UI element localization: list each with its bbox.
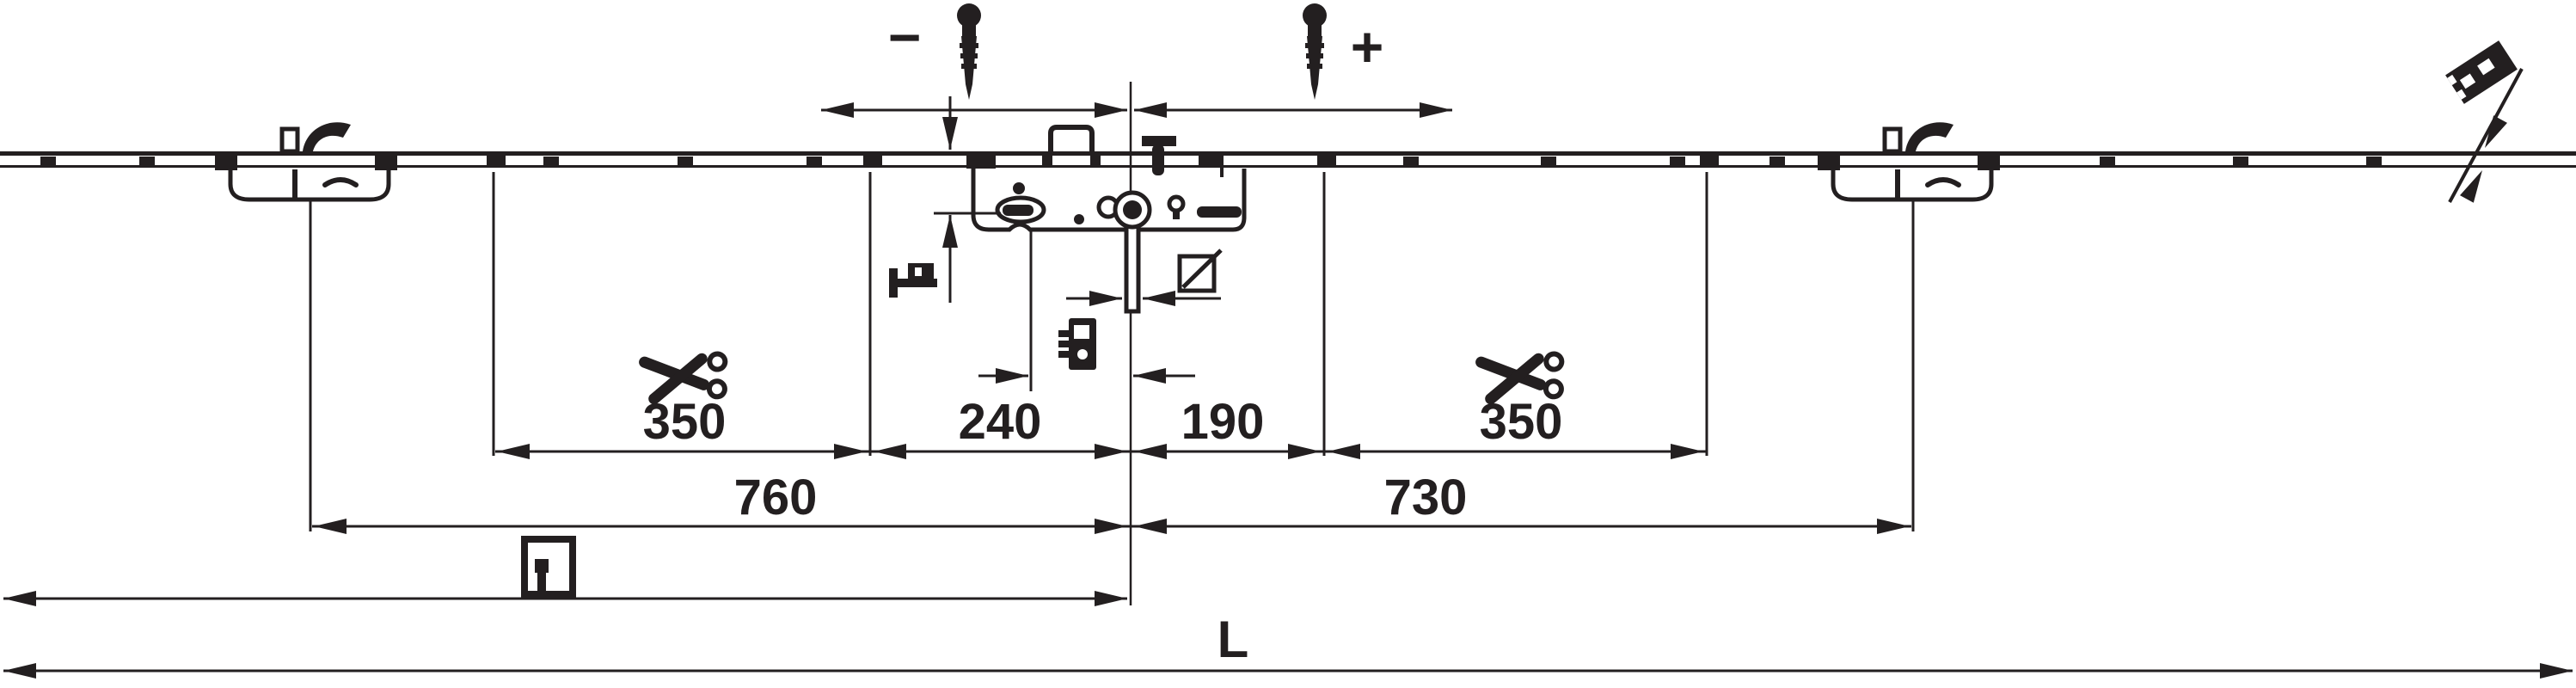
left-cam-keep <box>215 122 397 200</box>
adjustment-screw-icon <box>957 3 981 100</box>
profile-section-gauge <box>2445 40 2522 203</box>
keyhole <box>1169 197 1183 219</box>
door-leaf-icon <box>524 539 573 594</box>
dim-190: 190 <box>1181 394 1265 450</box>
dim-240: 240 <box>959 394 1042 450</box>
adjustment-screw-icon <box>1303 3 1327 100</box>
handle-axis-dimension <box>889 96 1001 303</box>
dim-730: 730 <box>1384 470 1468 525</box>
square-spindle-dimension <box>1066 250 1221 306</box>
dim-overall-length: L <box>1217 611 1249 668</box>
spindle-follower <box>1099 193 1150 311</box>
span-dimension-row: 760 730 <box>312 470 1911 534</box>
dim-760: 760 <box>734 470 818 525</box>
square-spindle-icon <box>1180 250 1221 291</box>
cylinder-distance-dimension <box>978 318 1195 384</box>
overall-length-dimension: L <box>3 611 2573 679</box>
segment-dimension-row: 350 240 190 350 <box>495 346 1707 459</box>
right-cam-keep <box>1818 122 2000 200</box>
adjustment-plus-label: + <box>1351 15 1384 78</box>
top-adjustment-dimension: − + <box>821 3 1452 118</box>
handle-position-dimension <box>3 539 1127 606</box>
adjustment-minus-label: − <box>888 5 922 69</box>
espagnolette-lock-dimension-drawing: − + <box>0 0 2576 688</box>
handle-lever-icon <box>889 263 937 298</box>
gearbox-clamp <box>1042 127 1101 165</box>
lock-cylinder-fixing-icon <box>1058 318 1096 370</box>
